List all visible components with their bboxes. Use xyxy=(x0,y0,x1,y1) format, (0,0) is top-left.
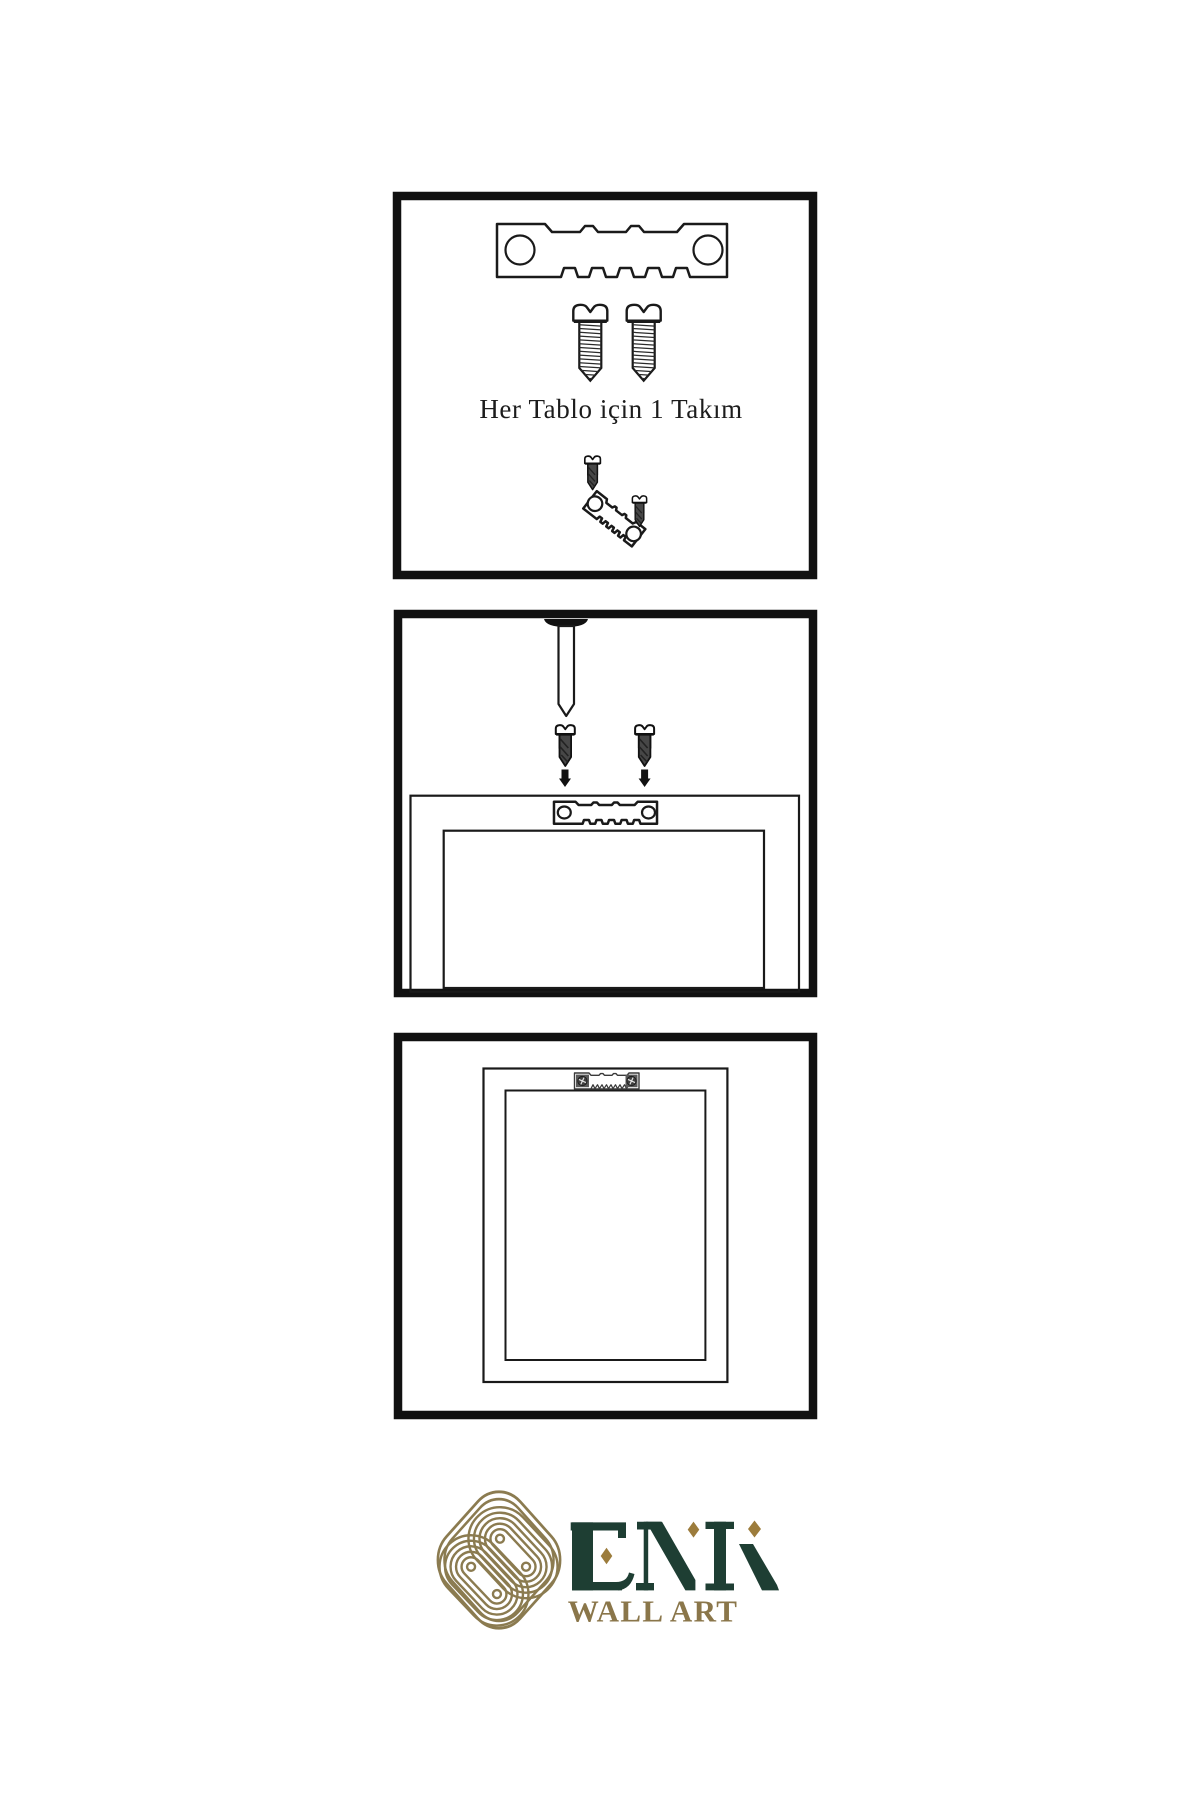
svg-text:WALL ART: WALL ART xyxy=(568,1594,738,1629)
svg-text:Her Tablo için 1 Takım: Her Tablo için 1 Takım xyxy=(479,394,742,424)
